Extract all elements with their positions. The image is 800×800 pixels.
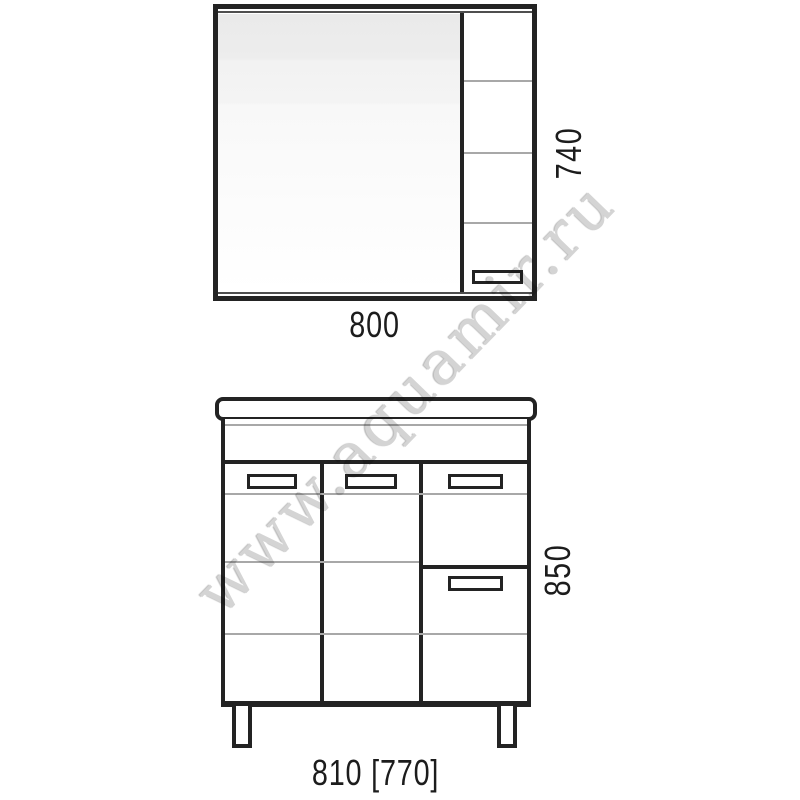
facade-panel-line [225, 493, 527, 495]
middle-door-handle [345, 474, 397, 489]
drawer-divider-line [423, 565, 527, 569]
vanity-height-value: 850 [537, 544, 579, 597]
vanity-width-dimension: 810 [770] [221, 751, 531, 795]
top-drawer-handle [448, 474, 503, 489]
facade-panel-line [225, 561, 419, 563]
bottom-drawer-handle [448, 576, 503, 591]
vanity-body-outline [221, 419, 531, 707]
mirror-cabinet-height-dimension: 740 [534, 118, 604, 188]
mirror-cabinet-width-dimension: 800 [213, 303, 537, 347]
door-divider-right [419, 460, 423, 701]
vanity-height-dimension: 850 [523, 535, 593, 605]
technical-drawing: 800 740 810 [770] 850 www.aquamir.ru [0, 0, 800, 800]
mirror-cabinet-height-value: 740 [548, 127, 590, 180]
vanity-width-value: 810 [770] [312, 752, 439, 794]
mirror-cabinet-handle [472, 270, 523, 284]
shelf-line [464, 80, 532, 82]
left-leg [232, 706, 252, 748]
mirror-pane [218, 14, 460, 291]
right-leg [497, 706, 517, 748]
apron-bottom-line [225, 460, 527, 464]
shelf-line [464, 152, 532, 154]
mirror-cabinet-width-value: 800 [350, 304, 400, 346]
mirror-cabinet-outline [213, 4, 537, 301]
shelf-line [464, 222, 532, 224]
left-door-handle [247, 474, 297, 489]
vanity-countertop [215, 397, 537, 421]
apron-accent-line [225, 424, 527, 426]
mirror-cabinet-inner-top-line [218, 11, 532, 13]
mirror-cabinet-inner-bottom-line [218, 292, 532, 294]
facade-panel-line [225, 633, 527, 635]
door-divider-left [320, 460, 324, 701]
